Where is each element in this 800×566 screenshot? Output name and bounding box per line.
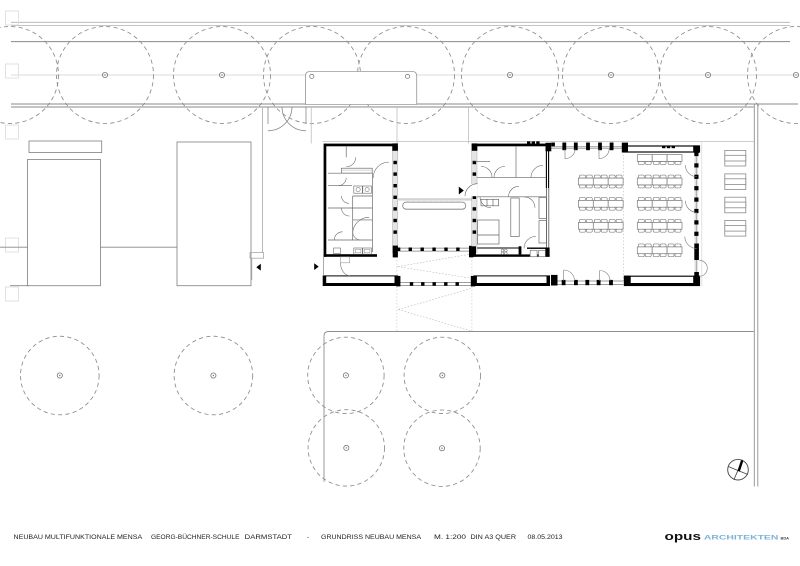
svg-text:ARCHITEKTEN: ARCHITEKTEN <box>704 534 779 541</box>
svg-text:GEORG-BÜCHNER-SCHULE: GEORG-BÜCHNER-SCHULE <box>151 533 240 541</box>
svg-text:NEUBAU MULTIFUNKTIONALE MENSA: NEUBAU MULTIFUNKTIONALE MENSA <box>14 534 144 541</box>
svg-text:opus: opus <box>665 531 702 543</box>
svg-text:DARMSTADT: DARMSTADT <box>245 534 292 541</box>
svg-text:M. 1:200: M. 1:200 <box>434 534 467 541</box>
svg-text:GRUNDRISS NEUBAU MENSA: GRUNDRISS NEUBAU MENSA <box>321 534 422 541</box>
svg-text:BDA: BDA <box>781 536 790 540</box>
svg-text:08.05.2013: 08.05.2013 <box>528 534 564 541</box>
svg-text:DIN A3 QUER: DIN A3 QUER <box>471 534 517 541</box>
svg-text:-: - <box>307 534 309 541</box>
